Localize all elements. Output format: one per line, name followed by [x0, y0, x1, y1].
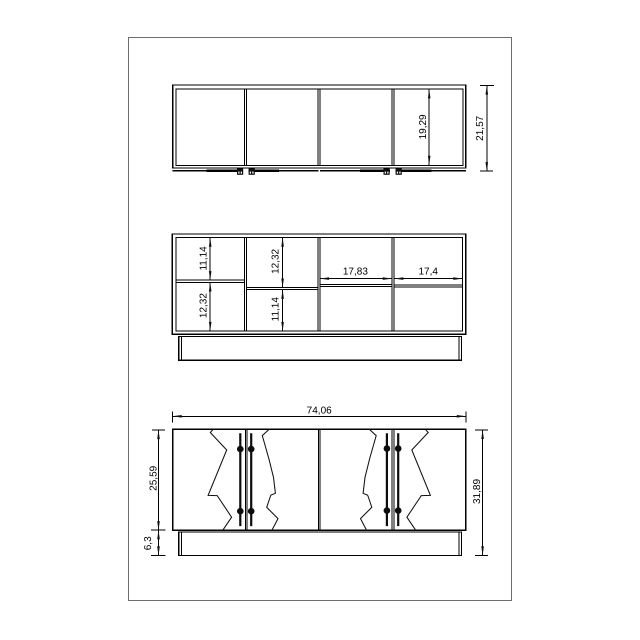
svg-text:12,32: 12,32	[271, 248, 282, 273]
svg-text:11,14: 11,14	[271, 297, 282, 322]
svg-text:17,83: 17,83	[343, 267, 368, 278]
svg-text:31,89: 31,89	[472, 479, 483, 504]
svg-text:12,32: 12,32	[198, 293, 209, 318]
svg-text:17,4: 17,4	[418, 267, 438, 278]
svg-text:19,29: 19,29	[418, 114, 429, 139]
svg-text:6,3: 6,3	[143, 536, 154, 550]
svg-text:11,14: 11,14	[198, 246, 209, 271]
svg-text:25,59: 25,59	[149, 465, 160, 490]
svg-text:21,57: 21,57	[475, 115, 486, 140]
svg-text:74,06: 74,06	[307, 405, 332, 416]
